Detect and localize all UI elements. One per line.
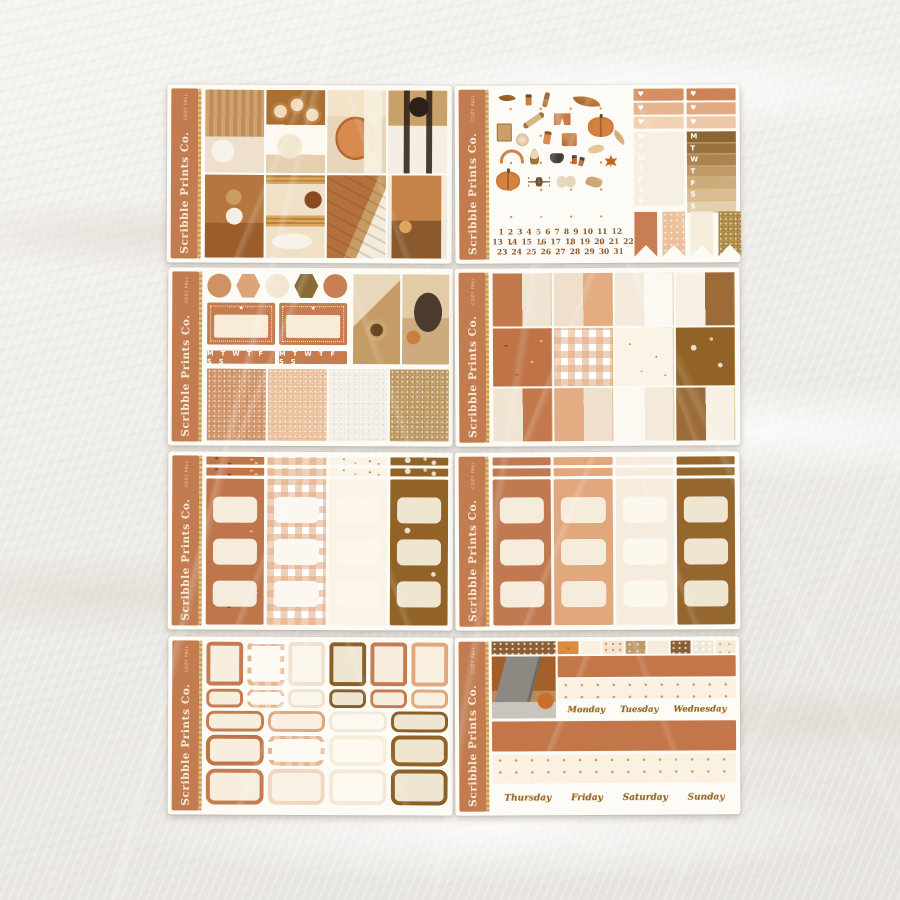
weekday-cell: M — [634, 132, 684, 143]
write-area — [622, 497, 666, 523]
washi-strip — [554, 457, 612, 465]
brown-leaf-icon — [498, 91, 515, 106]
write-area — [684, 580, 728, 606]
day-script-sticker: Monday — [567, 705, 605, 715]
date-number-stickers: 1 2 3 4 5 6 7 8 9 10 11 1213 14 15 16 17… — [492, 227, 628, 258]
kettle-icon — [550, 153, 564, 163]
flag-terracotta — [634, 212, 657, 257]
tan-leaf-icon — [611, 130, 628, 145]
kit-name-label: COZY FALL — [470, 462, 475, 489]
patchwork-row-bottom — [493, 387, 735, 442]
sheet-content: MondayTuesdayWednesday ThursdayFridaySat… — [492, 640, 737, 811]
sticker-sheet-4-patchwork: COZY FALL Scribble Prints Co. — [455, 267, 741, 446]
column-peach — [554, 457, 613, 625]
weekday-cell: T — [686, 143, 736, 155]
half-box-stack — [615, 479, 674, 625]
face-mask-packet-icon — [497, 123, 512, 141]
day-script-sticker: Wednesday — [673, 704, 726, 714]
big-label-brown — [390, 769, 448, 805]
square-label-terracotta — [370, 642, 407, 686]
weekday-cell: T — [634, 163, 684, 174]
sticker-sheet-8-day-scripts: COZY FALL Scribble Prints Co. MondayTues… — [455, 636, 741, 815]
headband-icon — [500, 149, 524, 163]
square-label-brown — [329, 642, 366, 686]
full-box-leaf-pattern — [493, 328, 552, 386]
write-area — [335, 539, 379, 565]
washi-strip — [493, 468, 551, 476]
wide-label-cream — [329, 711, 387, 732]
glasses-icon — [528, 177, 550, 186]
write-area — [274, 539, 318, 565]
nail-polish-icon — [572, 155, 577, 164]
terracotta-circle — [323, 274, 347, 298]
washi-strip — [390, 468, 448, 476]
pill-label-terracotta — [370, 689, 407, 708]
mini-square-dotted — [603, 641, 624, 654]
label-grid — [206, 642, 449, 811]
write-area — [561, 539, 605, 565]
washi-strip — [206, 468, 264, 476]
column-brown — [676, 456, 735, 624]
write-area — [213, 581, 257, 607]
write-area — [274, 581, 318, 607]
heart-strip — [634, 103, 684, 115]
day-script-sticker: Sunday — [687, 792, 724, 802]
washi-strip — [390, 457, 448, 465]
kit-name-label: COZY FALL — [470, 278, 475, 305]
half-box-cream-terracotta — [493, 388, 552, 442]
brand-spine: COZY FALL Scribble Prints Co. — [459, 457, 487, 627]
photo-box-bathroom — [205, 90, 264, 173]
mini-square-snowflake — [693, 640, 714, 653]
flag-cream — [690, 211, 713, 256]
big-label-terracotta — [206, 769, 264, 805]
pumpkin-stem — [599, 114, 602, 118]
washi-strip — [615, 468, 673, 476]
ticket-box — [279, 303, 347, 345]
ticket-write-area — [214, 315, 268, 338]
column-cream — [615, 457, 674, 625]
sheet-content — [205, 456, 450, 627]
weekday-cell: T — [686, 166, 736, 178]
sheet-content — [204, 89, 449, 260]
heart-strip — [634, 117, 684, 129]
big-autumn-leaf-icon — [573, 93, 601, 110]
big-label-row — [206, 769, 448, 806]
lotion-tube-icon — [543, 131, 552, 145]
rolling-pin-icon — [522, 111, 545, 129]
half-box-stack — [554, 479, 613, 625]
square-label-cream — [288, 642, 325, 686]
write-area — [336, 497, 380, 523]
weekday-cell: S — [634, 195, 684, 206]
mini-pattern-strip-row — [492, 640, 736, 654]
photo-box-pancakes — [266, 175, 325, 258]
brand-name: Scribble Prints Co. — [179, 683, 192, 805]
washi-strip — [676, 467, 734, 475]
kit-name-label: COZY FALL — [183, 460, 188, 487]
photo-box-cinnamon-rolls — [266, 90, 325, 173]
day-script-sticker: Thursday — [504, 793, 551, 803]
day-script-sticker: Saturday — [623, 793, 668, 803]
patterned-label-row — [206, 735, 448, 767]
sheet-content — [492, 455, 737, 626]
photo-box-grid — [205, 90, 448, 259]
brand-spine: COZY FALL Scribble Prints Co. — [171, 88, 199, 258]
dotted-washi-strip — [558, 678, 736, 700]
washi-right-stack: MondayTuesdayWednesday — [558, 655, 736, 718]
write-area — [397, 539, 441, 565]
washi-columns — [206, 457, 449, 626]
pill-label-brown — [329, 689, 366, 708]
flag-peach-dotted — [662, 212, 685, 257]
peach-hexagon — [236, 274, 260, 298]
mini-square-cream — [580, 641, 601, 654]
half-box-stack — [389, 479, 448, 625]
gold-glitter-edge — [486, 457, 490, 627]
sheet-content — [492, 271, 737, 442]
hair-brush-icon — [542, 92, 550, 108]
half-box-cream-white — [615, 273, 674, 327]
write-area — [500, 497, 544, 523]
washi-strip — [676, 456, 734, 464]
pajama-top-icon — [562, 133, 577, 146]
sticker-sheet-3-glitter: COZY FALL Scribble Prints Co. M T W T F … — [168, 267, 454, 446]
brand-name: Scribble Prints Co. — [178, 131, 191, 253]
wide-label-peach — [267, 711, 325, 732]
heart-strip — [686, 102, 736, 114]
copper-glitter-circle — [207, 274, 231, 298]
heart-strip — [686, 88, 736, 100]
copper-glitter-swatch — [207, 369, 266, 441]
slippers-icon — [556, 175, 576, 188]
half-box-white-cream — [615, 387, 674, 441]
weekday-cell: M — [686, 131, 736, 143]
gold-glitter-edge — [486, 642, 490, 812]
weekly-extras-area: MTWTFSS MTWTFSS — [634, 88, 737, 259]
sticker-sheet-5-patterned-columns: COZY FALL Scribble Prints Co. — [168, 451, 454, 630]
column-floral — [328, 457, 387, 625]
kit-name-label: COZY FALL — [183, 276, 188, 303]
mini-square-brown-floral — [670, 641, 691, 654]
photo-box-cat-blanket — [402, 274, 449, 364]
hand-mirror-icon — [530, 149, 539, 164]
peach-glitter-swatch — [268, 369, 327, 441]
write-area — [500, 539, 544, 565]
day-script-sticker: Friday — [571, 793, 603, 803]
loofah-icon — [516, 133, 529, 146]
column-pumpkin-pattern — [389, 457, 448, 625]
day-script-row-1: MondayTuesdayWednesday — [558, 701, 736, 719]
big-label-cream — [329, 769, 387, 805]
sticker-sheet-1-full-boxes: COZY FALL Scribble Prints Co. — [167, 84, 453, 263]
wide-label-row — [206, 711, 448, 733]
column-leaf-pattern — [206, 457, 265, 625]
washi-strip — [268, 468, 326, 476]
date-row: 23 24 25 26 27 28 29 30 31 — [492, 247, 628, 258]
brand-name: Scribble Prints Co. — [179, 498, 192, 620]
patchwork-grid — [493, 272, 736, 441]
brand-spine: COZY FALL Scribble Prints Co. — [459, 273, 487, 443]
date-row: 13 14 15 16 17 18 19 20 21 22 — [492, 237, 628, 248]
photo-box-cocoa-flatlay — [353, 274, 400, 364]
full-box-floral — [615, 328, 674, 386]
pill-label-peach — [411, 689, 448, 708]
half-box-peach-cream — [554, 388, 613, 442]
washi-strip — [615, 457, 673, 465]
cream-circle — [265, 274, 289, 298]
mini-square-cream — [648, 641, 669, 654]
square-label-gingham — [247, 642, 284, 686]
white-glitter-swatch — [329, 369, 388, 441]
flag-stickers — [634, 211, 741, 257]
write-area — [622, 539, 666, 565]
pill-label-cream — [288, 689, 325, 708]
mini-square-peach-dotted — [715, 640, 736, 653]
glitter-swatch-row — [207, 369, 449, 442]
photo-box-pair — [353, 274, 449, 364]
date-row: 1 2 3 4 5 6 7 8 9 10 11 12 — [492, 227, 628, 238]
heart-strip — [634, 89, 684, 101]
write-area — [274, 497, 318, 523]
write-area — [623, 581, 667, 607]
sticker-sheet-6-solid-columns: COZY FALL Scribble Prints Co. — [455, 451, 741, 630]
square-label-terracotta — [206, 642, 243, 686]
ticket-box — [207, 303, 275, 345]
patchwork-row-top — [493, 272, 735, 327]
half-box-stack — [206, 479, 265, 625]
brand-spine: COZY FALL Scribble Prints Co. — [459, 642, 487, 812]
write-area — [561, 497, 605, 523]
sheet-content: M T W T F S S M T W T F S S — [205, 272, 450, 443]
half-box-stack — [267, 479, 326, 625]
day-script-sticker: Tuesday — [620, 704, 658, 714]
brand-name: Scribble Prints Co. — [466, 499, 479, 621]
brand-spine: COZY FALL Scribble Prints Co. — [459, 90, 487, 260]
ticket-box-stickers — [207, 303, 347, 346]
deco-sticker-area: 1 2 3 4 5 6 7 8 9 10 11 1213 14 15 16 17… — [492, 89, 631, 260]
kit-name-label: COZY FALL — [183, 645, 188, 672]
column-gingham — [267, 457, 326, 625]
washi-strip — [554, 468, 612, 476]
mini-square-pumpkin — [558, 641, 579, 654]
half-box-stack — [493, 479, 552, 625]
weekday-cell: T — [634, 142, 684, 153]
write-area — [213, 497, 257, 523]
full-box-gingham — [554, 328, 613, 386]
wide-label-terracotta — [206, 711, 264, 732]
half-box-stack — [676, 478, 735, 624]
photo-box-baking-bowl — [327, 90, 386, 173]
ticket-write-area — [286, 315, 340, 338]
brand-name: Scribble Prints Co. — [179, 314, 192, 436]
kit-name-label: COZY FALL — [470, 647, 475, 674]
photo-box-woman-coffee — [205, 175, 264, 258]
wide-label-brown — [390, 711, 448, 732]
label-floral-cream — [329, 735, 387, 766]
terracotta-washi-strip — [558, 655, 736, 677]
weekday-strip: M T W T F S S — [207, 351, 275, 364]
label-leaf-pattern — [206, 735, 264, 766]
leaf-washi-strip — [492, 641, 556, 654]
pajama-shorts-icon — [554, 113, 571, 125]
product-photo-canvas: COZY FALL Scribble Prints Co. COZY FALL … — [0, 0, 900, 900]
weekday-cell: W — [634, 153, 684, 164]
habit-column-brown-gold: MTWTFSS — [686, 131, 736, 212]
small-pumpkin-icon — [496, 171, 520, 190]
pill-label-gingham — [247, 689, 284, 708]
washi-strip — [206, 457, 264, 465]
square-label-row — [206, 642, 448, 687]
weekday-cell: F — [687, 178, 737, 190]
gold-glitter-edge — [198, 89, 202, 259]
label-gingham — [267, 735, 325, 766]
sticker-sheet-2-deco: COZY FALL Scribble Prints Co. — [455, 84, 741, 263]
habit-column-cream: MTWTFSS — [634, 132, 684, 213]
square-label-peach — [411, 642, 448, 686]
label-pumpkin-pattern — [390, 735, 448, 766]
photo-box-cozy-jacket — [327, 175, 386, 258]
day-script-row-2: ThursdayFridaySaturdaySunday — [492, 786, 736, 811]
gold-glitter-edge — [199, 456, 203, 626]
washi-strip — [268, 457, 326, 465]
write-area — [335, 581, 379, 607]
sheet-content — [205, 641, 450, 812]
brand-name: Scribble Prints Co. — [466, 315, 479, 437]
pill-label-row — [206, 689, 448, 709]
brand-spine: COZY FALL Scribble Prints Co. — [172, 640, 200, 810]
terracotta-washi-strip — [492, 720, 736, 751]
weekday-header-strips: M T W T F S S M T W T F S S — [207, 351, 347, 365]
gold-glitter-edge — [199, 272, 203, 442]
weekday-cell: S — [634, 185, 684, 196]
sheet-content: 1 2 3 4 5 6 7 8 9 10 11 1213 14 15 16 17… — [492, 88, 737, 259]
maple-leaf-icon — [604, 155, 618, 168]
brand-name: Scribble Prints Co. — [466, 684, 479, 806]
shape-sticker-row — [207, 274, 347, 299]
photo-box-robe-selfie — [388, 90, 447, 173]
washi-bottom-stack: ThursdayFridaySaturdaySunday — [492, 720, 736, 810]
sleep-mask-icon — [587, 143, 604, 154]
brand-name: Scribble Prints Co. — [466, 132, 479, 254]
gold-glitter-edge — [486, 273, 490, 443]
flag-gold-glitter — [718, 211, 741, 256]
washi-strip — [329, 468, 387, 476]
nail-polish-icon — [578, 157, 585, 167]
half-box-stack — [328, 479, 387, 625]
full-box-pumpkin-pattern — [676, 328, 735, 386]
photo-box-porch-swing — [388, 175, 447, 258]
big-label-peach — [267, 769, 325, 805]
write-area — [500, 581, 544, 607]
kit-name-label: COZY FALL — [182, 93, 187, 120]
gold-glitter-hexagon — [294, 274, 318, 298]
column-terracotta — [493, 457, 552, 625]
sticker-sheet-7-labels: COZY FALL Scribble Prints Co. — [168, 636, 454, 815]
gold-glitter-edge — [486, 90, 490, 260]
pumpkin-stem — [507, 168, 510, 172]
lotion-bottle-icon — [526, 94, 532, 105]
kit-name-label: COZY FALL — [470, 95, 475, 122]
washi-strip — [329, 457, 387, 465]
mini-square-tan-speckle — [625, 641, 646, 654]
weekday-cell: S — [687, 189, 737, 201]
dotted-washi-strip — [492, 753, 736, 784]
write-area — [561, 581, 605, 607]
washi-strip — [493, 457, 551, 465]
write-area — [397, 497, 441, 523]
weekday-cell: W — [686, 154, 736, 166]
brand-spine: COZY FALL Scribble Prints Co. — [172, 455, 200, 625]
half-box-cream-peach — [554, 273, 613, 327]
write-area — [396, 581, 440, 607]
gold-glitter-edge — [199, 641, 203, 811]
patchwork-row-patterned — [493, 328, 735, 387]
heart-checklist-strips — [634, 88, 736, 129]
half-box-brown-cream — [676, 387, 735, 441]
gold-glitter-swatch — [390, 369, 449, 441]
weekday-strip: M T W T F S S — [279, 351, 347, 364]
heart-strip — [686, 116, 736, 128]
brand-spine: COZY FALL Scribble Prints Co. — [172, 271, 200, 441]
write-area — [684, 538, 728, 564]
pill-label-terracotta — [206, 689, 243, 708]
write-area — [213, 539, 257, 565]
photo-box-laptop-pumpkin — [492, 656, 556, 718]
half-box-cream-brown — [676, 272, 735, 326]
write-area — [684, 496, 728, 522]
large-pumpkin-icon — [588, 117, 614, 137]
weekday-cell: F — [634, 174, 684, 185]
weekday-habit-columns: MTWTFSS MTWTFSS — [634, 131, 736, 213]
half-box-terracotta-cream — [493, 273, 552, 327]
washi-columns — [493, 456, 736, 625]
oak-leaf-icon — [585, 175, 603, 190]
